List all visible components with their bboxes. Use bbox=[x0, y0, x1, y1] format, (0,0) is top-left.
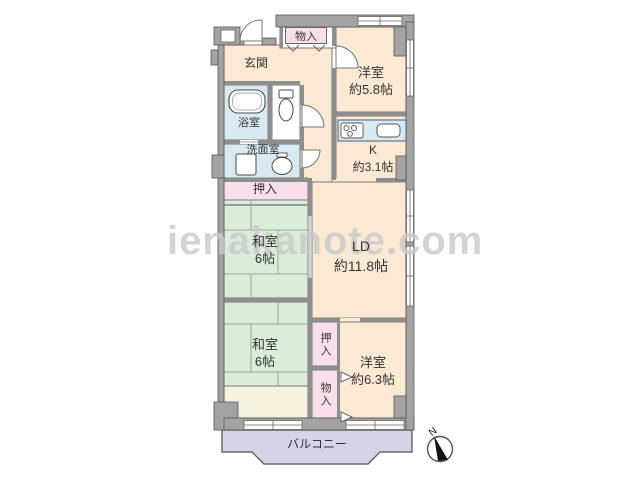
washroom-label: 洗面室 bbox=[247, 142, 280, 158]
bathroom-label: 浴室 bbox=[238, 115, 260, 131]
room-size: 6帖 bbox=[252, 250, 278, 267]
entrance-door-arc bbox=[240, 20, 262, 41]
toilet-icon bbox=[279, 90, 293, 121]
kitchen-sink-icon bbox=[377, 124, 400, 137]
western-room-1-label: 洋室 約5.8帖 bbox=[349, 64, 393, 98]
japanese-room-1-label: 和室 6帖 bbox=[252, 233, 278, 267]
room-size: 約6.3帖 bbox=[351, 371, 395, 388]
room-size: 6帖 bbox=[252, 353, 278, 370]
window-bottom-1 bbox=[244, 421, 302, 430]
storage-top-label: 物入 bbox=[285, 27, 327, 44]
kitchen-counter bbox=[338, 120, 406, 141]
room-name: 洋室 bbox=[351, 354, 395, 371]
room-size: 約11.8帖 bbox=[334, 256, 388, 276]
living-dining-label: LD 約11.8帖 bbox=[334, 236, 388, 276]
balcony-label: バルコニー bbox=[287, 436, 347, 452]
stove-icon bbox=[341, 123, 363, 138]
kitchen-label: K 約3.1帖 bbox=[353, 142, 394, 176]
japanese-room-2-label: 和室 6帖 bbox=[252, 336, 278, 370]
storage-right-label: 物入 bbox=[319, 382, 331, 408]
room-size: 約5.8帖 bbox=[349, 81, 393, 98]
room-name: K bbox=[353, 142, 394, 159]
entrance-label: 玄関 bbox=[244, 55, 268, 71]
window-bottom-2 bbox=[346, 421, 404, 430]
closet-right-label: 押入 bbox=[319, 332, 331, 358]
meter-box bbox=[221, 30, 235, 42]
room-name: 和室 bbox=[252, 233, 278, 250]
room-size: 約3.1帖 bbox=[353, 159, 394, 176]
bathtub-icon bbox=[229, 90, 265, 113]
compass-icon: N bbox=[427, 426, 453, 462]
window-top bbox=[358, 17, 402, 26]
room-name: 和室 bbox=[252, 336, 278, 353]
watermark-text: ienakanote.com bbox=[167, 219, 483, 264]
closet-left-label: 押入 bbox=[253, 181, 277, 197]
room-name: LD bbox=[334, 236, 388, 256]
room-name: 洋室 bbox=[349, 64, 393, 81]
western-room-2-label: 洋室 約6.3帖 bbox=[351, 354, 395, 388]
window-right-1 bbox=[407, 40, 414, 96]
floor-plan-page: N ienakanote.com 物入 玄関 洋室 約5.8帖 浴室 洗面室 K… bbox=[0, 0, 640, 480]
